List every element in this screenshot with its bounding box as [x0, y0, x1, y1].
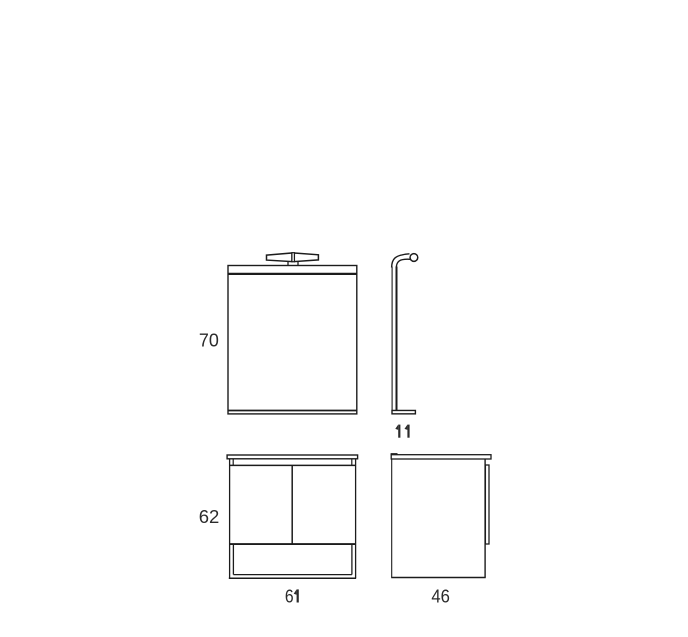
svg-text:70: 70 — [199, 330, 219, 350]
svg-text:46: 46 — [431, 586, 450, 607]
svg-text:6: 6 — [285, 585, 294, 607]
svg-text:62: 62 — [199, 506, 220, 527]
